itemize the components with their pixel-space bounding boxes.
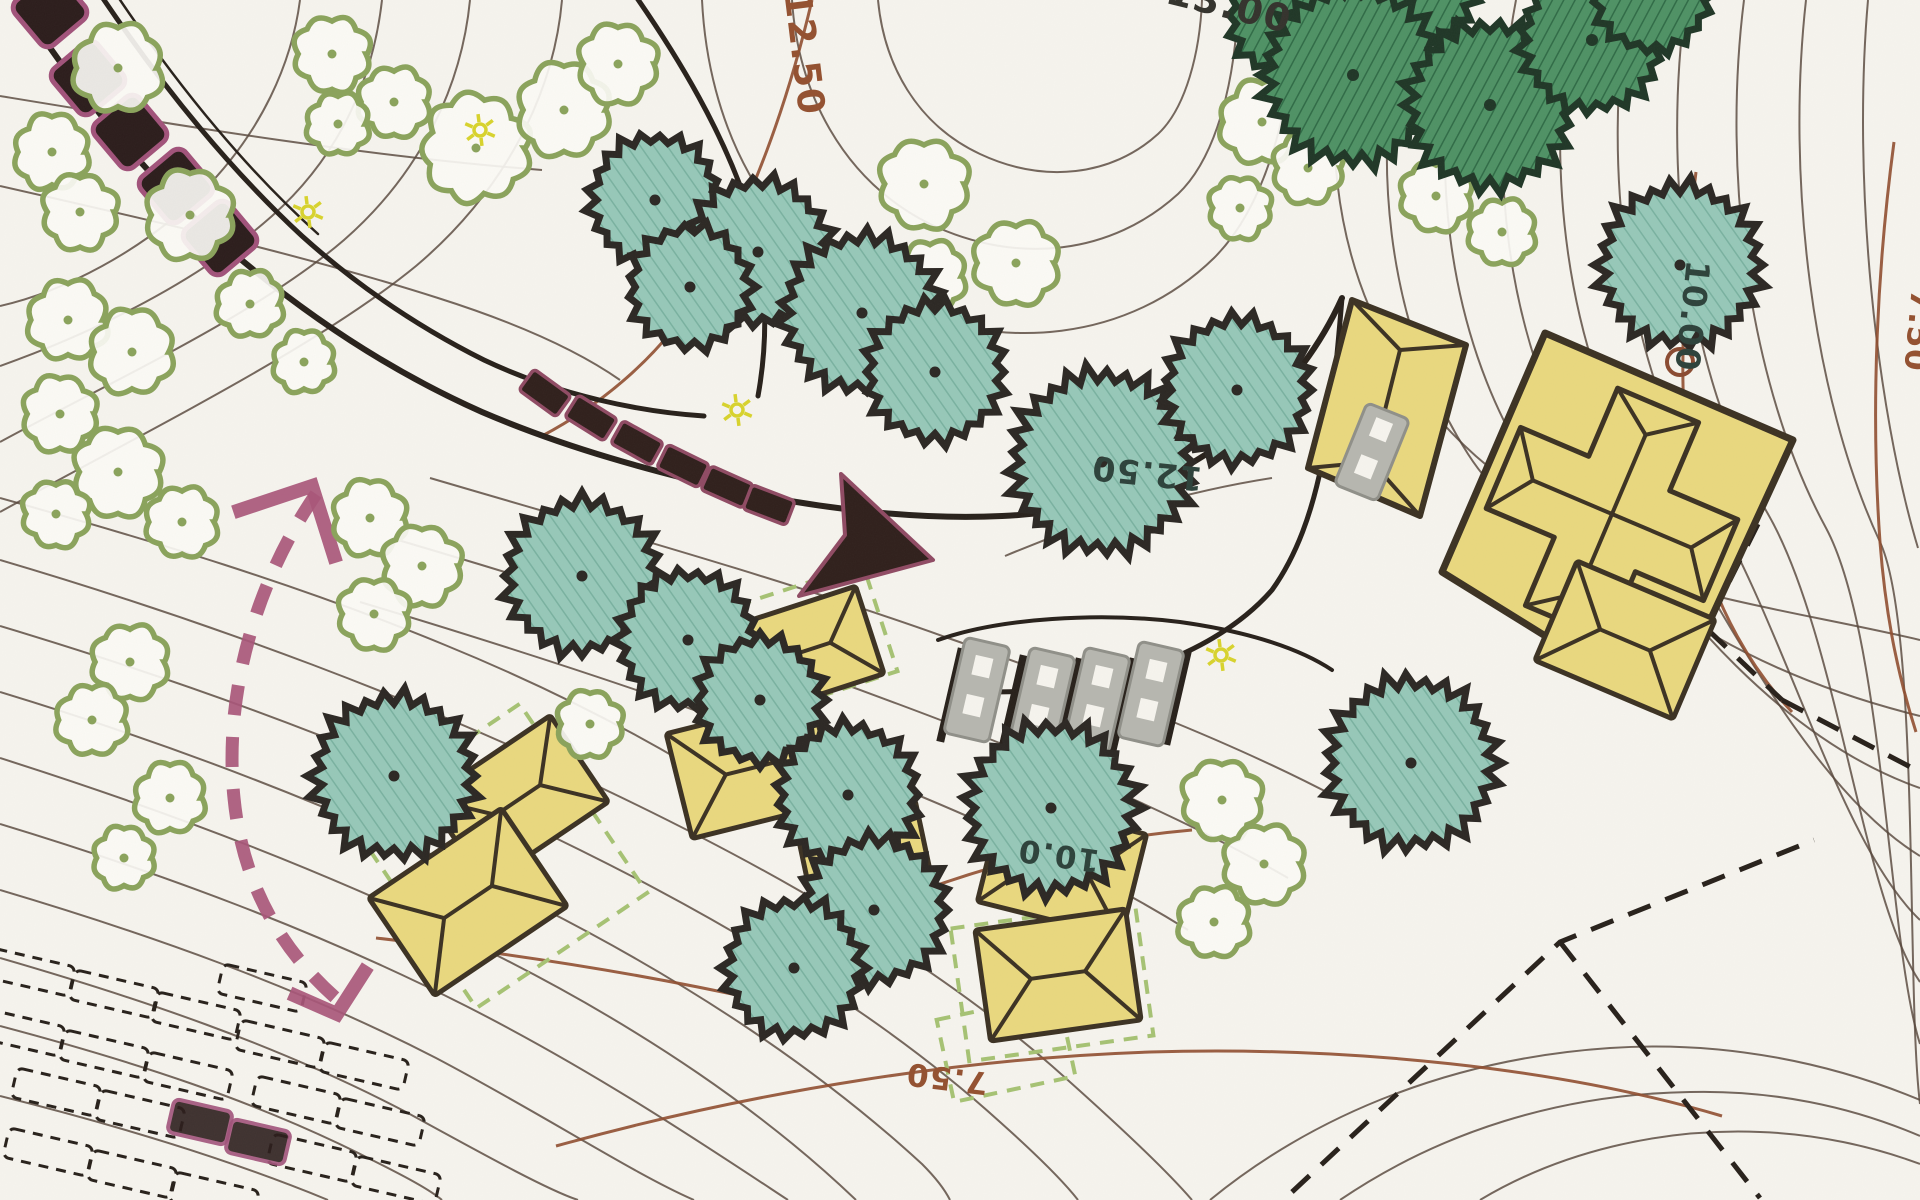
paper-texture-overlay xyxy=(0,0,1920,1200)
site-plan-scan: 12.5013.0012.5010.0010.07.507.50 xyxy=(0,0,1920,1200)
site-plan-drawing: 12.5013.0012.5010.0010.07.507.50 xyxy=(0,0,1920,1200)
